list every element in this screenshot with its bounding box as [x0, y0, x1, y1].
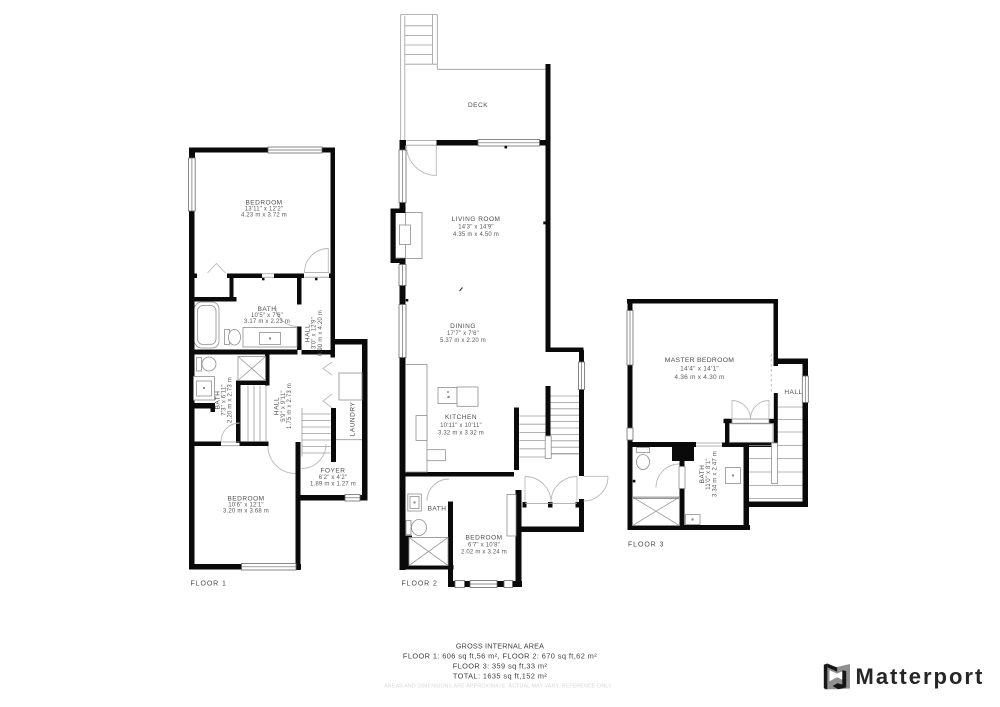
svg-text:LAUNDRY: LAUNDRY: [350, 402, 357, 437]
svg-text:BEDROOM: BEDROOM: [245, 200, 282, 207]
svg-text:4.36 m x 4.30 m: 4.36 m x 4.30 m: [674, 374, 725, 381]
svg-text:14'3" x 14'9": 14'3" x 14'9": [458, 225, 494, 231]
svg-text:5.37 m x 2.20 m: 5.37 m x 2.20 m: [440, 338, 486, 344]
svg-text:TOTAL: 1635 sq ft,152 m²: TOTAL: 1635 sq ft,152 m²: [453, 672, 547, 681]
svg-text:1.75 m x 2.73 m: 1.75 m x 2.73 m: [287, 383, 293, 429]
svg-text:FLOOR 1: FLOOR 1: [191, 581, 227, 588]
svg-text:3.32 m x 3.32 m: 3.32 m x 3.32 m: [438, 431, 484, 437]
svg-text:3.20 m x 3.68 m: 3.20 m x 3.68 m: [223, 509, 269, 515]
svg-text:LIVING ROOM: LIVING ROOM: [452, 216, 501, 223]
svg-text:HALL: HALL: [305, 324, 312, 342]
svg-text:BATH: BATH: [699, 465, 706, 484]
svg-text:3.34 m x 2.47 m: 3.34 m x 2.47 m: [712, 451, 718, 497]
svg-text:14'4" x 14'1": 14'4" x 14'1": [680, 366, 719, 373]
svg-text:11'0" x 8'1": 11'0" x 8'1": [706, 458, 712, 490]
svg-text:6'7" x 10'8": 6'7" x 10'8": [468, 543, 500, 549]
svg-text:FLOOR 2: FLOOR 2: [402, 581, 438, 588]
svg-text:AREAS AND DIMENSIONS ARE APPRO: AREAS AND DIMENSIONS ARE APPROXIMATE. AC…: [384, 684, 612, 690]
svg-text:4.23 m x 3.72 m: 4.23 m x 3.72 m: [241, 213, 287, 219]
svg-text:FLOOR 3: 359 sq ft,33 m²: FLOOR 3: 359 sq ft,33 m²: [453, 662, 548, 671]
svg-text:1.89 m x 1.27 m: 1.89 m x 1.27 m: [310, 482, 356, 488]
svg-text:DECK: DECK: [468, 102, 488, 109]
svg-text:FOYER: FOYER: [321, 468, 346, 475]
svg-text:2.20 m x 2.73 m: 2.20 m x 2.73 m: [227, 377, 233, 423]
svg-text:HALL: HALL: [784, 389, 802, 396]
svg-text:6'2" x 4'2": 6'2" x 4'2": [319, 475, 347, 481]
svg-text:BATH: BATH: [258, 306, 277, 313]
svg-text:BATH: BATH: [428, 506, 447, 513]
svg-text:17'7" x 7'6": 17'7" x 7'6": [447, 331, 479, 337]
svg-text:KITCHEN: KITCHEN: [445, 414, 477, 421]
svg-text:HALL: HALL: [274, 397, 281, 415]
svg-text:FLOOR 1: 606 sq ft,56 m², FLOO: FLOOR 1: 606 sq ft,56 m², FLOOR 2: 670 s…: [403, 652, 597, 661]
svg-text:BEDROOM: BEDROOM: [465, 535, 502, 542]
svg-text:MASTER BEDROOM: MASTER BEDROOM: [665, 357, 735, 364]
svg-text:Matterport: Matterport: [856, 664, 985, 689]
svg-text:5'9" x 9'11": 5'9" x 9'11": [281, 390, 287, 422]
svg-text:0.90 m x 4.20 m: 0.90 m x 4.20 m: [318, 310, 324, 356]
svg-text:4.35 m x 4.50 m: 4.35 m x 4.50 m: [453, 232, 499, 238]
svg-text:GROSS INTERNAL AREA: GROSS INTERNAL AREA: [456, 642, 544, 651]
svg-text:3.17 m x 2.23 m: 3.17 m x 2.23 m: [244, 319, 290, 325]
svg-text:2.02 m x 3.24 m: 2.02 m x 3.24 m: [461, 550, 507, 556]
svg-text:3'0" x 12'9": 3'0" x 12'9": [312, 317, 318, 349]
svg-text:BEDROOM: BEDROOM: [227, 496, 264, 503]
svg-text:DINING: DINING: [450, 323, 476, 330]
svg-text:FLOOR 3: FLOOR 3: [628, 542, 664, 549]
svg-text:10'11" x 10'11": 10'11" x 10'11": [440, 423, 482, 429]
